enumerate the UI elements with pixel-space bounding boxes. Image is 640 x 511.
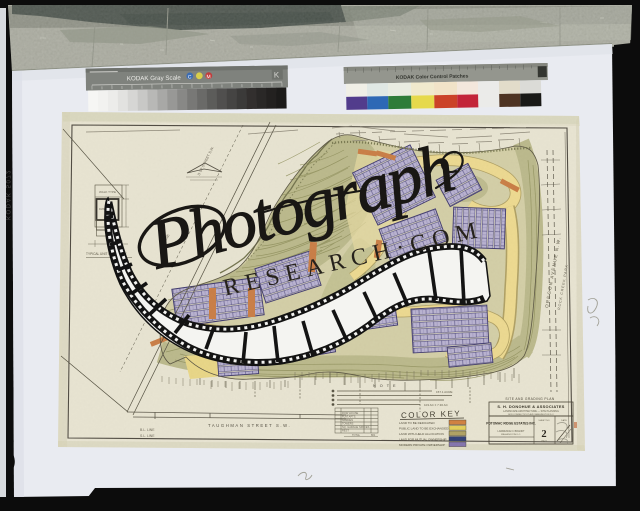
svg-text:K: K [274,71,280,80]
svg-text:KODAK 5072: KODAK 5072 [4,169,10,220]
svg-text:M: M [206,74,210,80]
svg-text:C: C [188,74,192,80]
svg-text:KODAK Gray Scale: KODAK Gray Scale [127,75,182,83]
